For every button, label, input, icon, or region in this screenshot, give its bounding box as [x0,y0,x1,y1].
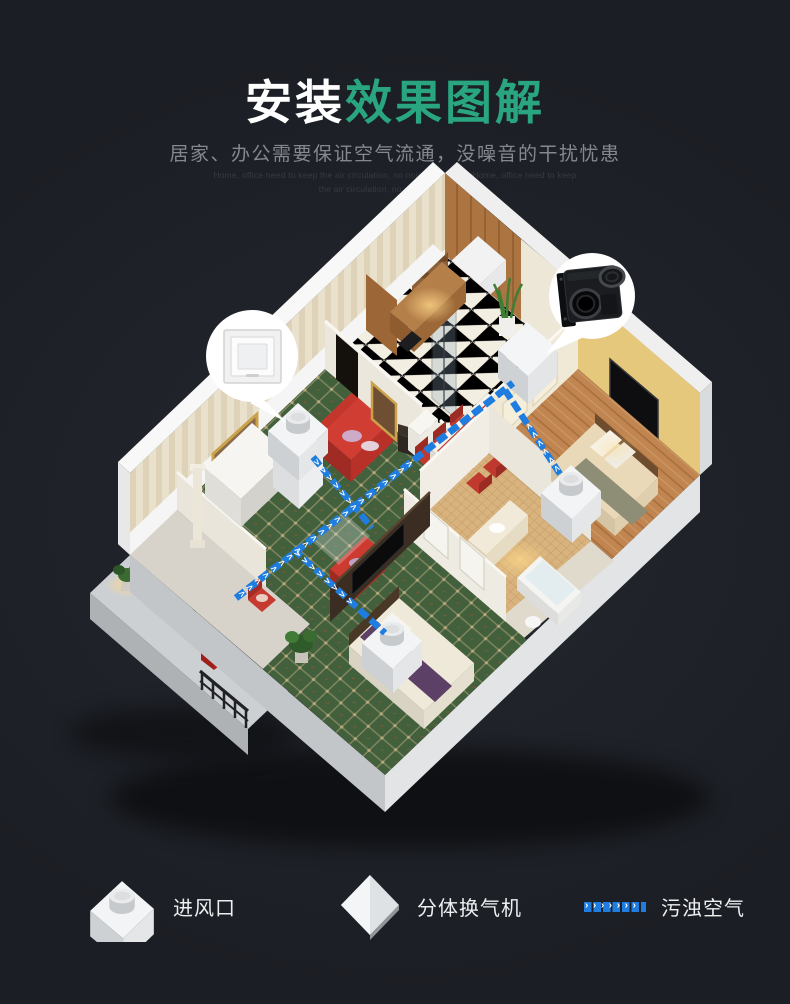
legend-item-split-ventilator: 分体换气机 [338,866,522,946]
airflow-chevrons: ››››››› [585,898,641,914]
legend-item-air-inlet: 进风口 [86,866,236,946]
ventilator-diamond-icon [338,872,402,940]
legend-label: 进风口 [173,892,236,921]
duct-fan-unit-icon [556,265,628,328]
ceiling-vent-panel-icon [224,330,281,383]
toilet-icon [525,616,541,628]
legend-label: 分体换气机 [417,892,522,921]
inlet-unit-3d-icon [86,870,158,942]
page: 安装效果图解 居家、办公需要保证空气流通，没噪音的干扰忧患 Home, offi… [0,0,790,1004]
house-3d-cutaway-illustration: > > > > > > > > > > > > > > > > > > > > … [0,0,790,1004]
legend-label: 污浊空气 [661,892,745,921]
legend: 进风口 分体换气机 ››››››› 污浊空气 [0,866,790,946]
blue-dashed-airflow-icon: ››››››› [584,902,646,912]
legend-item-polluted-air: ››››››› 污浊空气 [584,866,745,946]
